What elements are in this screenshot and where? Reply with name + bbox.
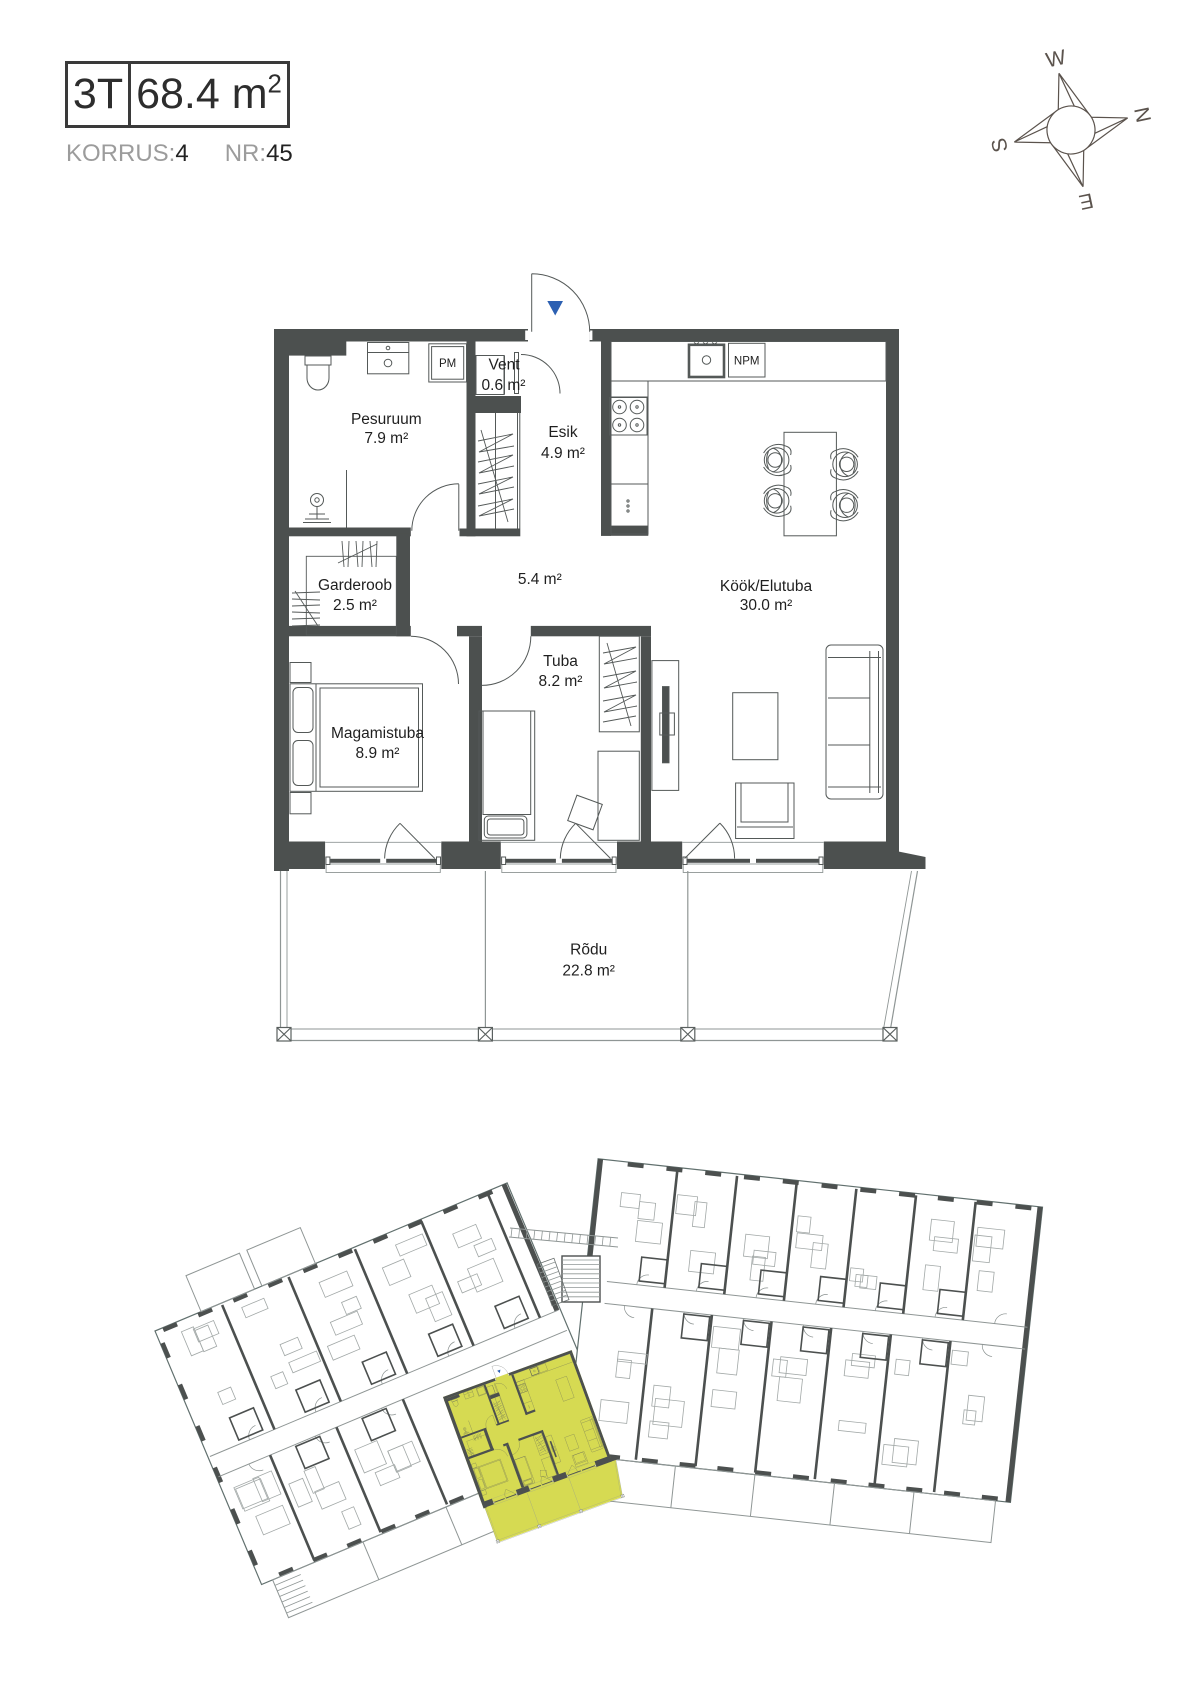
svg-text:8.9 m²: 8.9 m²: [356, 745, 400, 762]
svg-text:Pesuruum: Pesuruum: [351, 411, 422, 428]
svg-text:2.5 m²: 2.5 m²: [333, 597, 377, 614]
svg-text:Vent: Vent: [488, 357, 520, 374]
svg-text:22.8 m²: 22.8 m²: [562, 963, 615, 980]
svg-text:Garderoob: Garderoob: [318, 577, 392, 594]
svg-text:5.4 m²: 5.4 m²: [518, 571, 562, 588]
svg-text:S: S: [987, 136, 1012, 154]
svg-text:PM: PM: [439, 358, 456, 370]
svg-text:N: N: [1129, 105, 1155, 125]
svg-text:7.9 m²: 7.9 m²: [364, 430, 408, 447]
svg-text:8.2 m²: 8.2 m²: [539, 673, 583, 690]
svg-text:Köök/Elutuba: Köök/Elutuba: [720, 578, 813, 595]
svg-text:30.0 m²: 30.0 m²: [740, 597, 793, 614]
svg-text:NPM: NPM: [734, 356, 760, 368]
svg-text:Tuba: Tuba: [543, 653, 578, 670]
svg-text:Magamistuba: Magamistuba: [331, 725, 424, 742]
svg-text:W: W: [1044, 46, 1068, 73]
svg-text:0.6 m²: 0.6 m²: [482, 377, 526, 394]
svg-text:Esik: Esik: [548, 424, 578, 441]
svg-text:4.9 m²: 4.9 m²: [541, 445, 585, 462]
svg-text:E: E: [1077, 188, 1095, 213]
svg-text:Rõdu: Rõdu: [570, 942, 607, 959]
